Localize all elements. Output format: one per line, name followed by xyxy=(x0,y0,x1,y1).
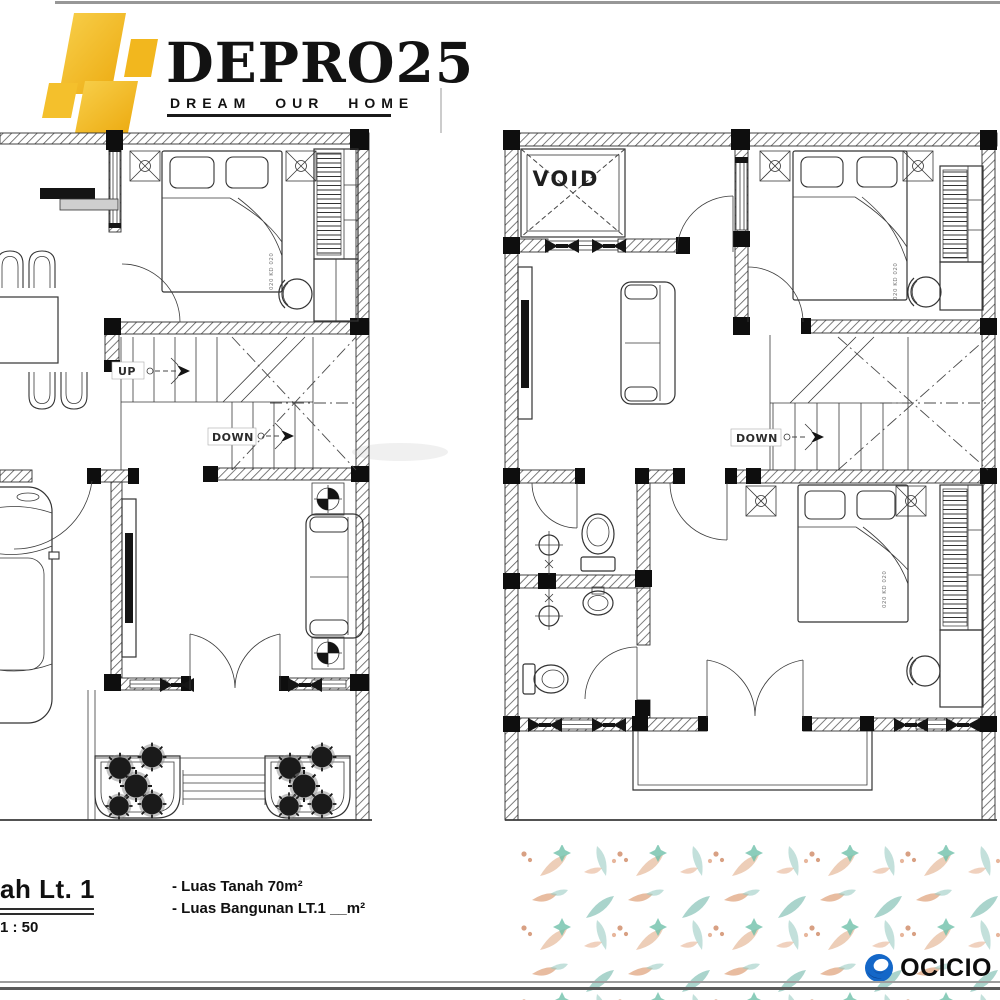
kitchen-counter xyxy=(40,188,118,210)
logo-tagline-rule xyxy=(167,114,391,117)
balcony xyxy=(633,731,872,790)
window xyxy=(735,157,748,230)
toilet xyxy=(523,664,568,694)
door-bedroom-top xyxy=(748,267,803,322)
chair xyxy=(907,656,940,686)
door-bedroom-bottom xyxy=(670,483,727,540)
double-bed xyxy=(793,151,907,300)
void-label: VOID xyxy=(533,167,600,191)
spotlight-icon xyxy=(312,637,344,669)
spotlight-icon xyxy=(312,483,344,515)
french-doors xyxy=(190,634,280,690)
double-bed xyxy=(162,151,282,292)
floor-plan-left: 020 KD 020 xyxy=(0,129,372,820)
double-bed xyxy=(798,485,908,622)
ceiling-fan-icon xyxy=(760,151,790,181)
ceiling-fan-icon xyxy=(130,151,160,181)
ocicio-wordmark: OCICIO xyxy=(900,954,992,983)
void-area: VOID xyxy=(521,149,625,237)
ceiling-fan-icon xyxy=(896,486,926,516)
top-border-line xyxy=(55,1,1000,4)
tv-console xyxy=(518,267,532,419)
ceiling-fan-icon xyxy=(286,151,316,181)
stair-down-label: DOWN xyxy=(731,424,824,450)
toilet xyxy=(581,514,615,571)
french-doors xyxy=(707,660,803,718)
door-garage xyxy=(14,481,92,549)
title-underline xyxy=(0,908,94,910)
stair-down-label: DOWN xyxy=(208,423,294,449)
plan-caption: ah Lt. 1 1 : 50 xyxy=(0,874,95,936)
title-underline-2 xyxy=(0,913,94,915)
ocicio-logo-icon xyxy=(863,952,895,984)
sofa xyxy=(621,282,675,404)
door-bathroom xyxy=(532,483,577,528)
floor-plan-drawing: 020 KD 020 xyxy=(0,0,1000,1000)
note-land-area: - Luas Tanah 70m² xyxy=(172,876,365,898)
footer-brandmark: OCICIO xyxy=(863,952,992,984)
window xyxy=(109,147,122,228)
chair xyxy=(279,279,312,309)
stairs xyxy=(770,335,988,470)
svg-text:DOWN: DOWN xyxy=(736,432,778,445)
bottom-border-line-2 xyxy=(0,987,1000,990)
area-notes: - Luas Tanah 70m² - Luas Bangunan LT.1 _… xyxy=(172,876,365,920)
wardrobe xyxy=(940,485,983,707)
sink xyxy=(583,587,613,615)
poster-sheet: 020 KD 020 xyxy=(0,0,1000,1000)
wardrobe xyxy=(940,166,983,310)
door-bathroom-lower xyxy=(585,647,637,700)
stair-up-label: UP xyxy=(112,358,190,384)
door-bedroom-left xyxy=(122,264,180,322)
plan-scale: 1 : 50 xyxy=(0,919,95,936)
logo-tiles-icon xyxy=(42,13,158,133)
chair xyxy=(908,277,941,307)
plan-title: ah Lt. 1 xyxy=(0,874,95,905)
wardrobe xyxy=(314,149,358,321)
svg-text:UP: UP xyxy=(118,365,136,378)
dining-table xyxy=(0,251,87,409)
car xyxy=(0,487,59,723)
sofa xyxy=(306,514,363,638)
scan-smudge xyxy=(352,443,448,461)
bed-size-label: 020 KD 020 xyxy=(893,263,899,300)
bed-size-label: 020 KD 020 xyxy=(882,571,888,608)
bed-size-label: 020 KD 020 xyxy=(269,253,275,290)
ceiling-fan-icon xyxy=(746,486,776,516)
bottom-border-line xyxy=(0,981,1000,983)
tv-console xyxy=(122,499,136,657)
stairs xyxy=(121,337,356,470)
floor-plan-right: VOID xyxy=(503,129,997,820)
planter-shrubs xyxy=(105,743,337,820)
svg-text:DOWN: DOWN xyxy=(212,431,254,444)
logo-brand-text: DEPRO25 xyxy=(166,30,474,95)
logo-tagline: DREAM OUR HOME xyxy=(170,95,414,111)
note-building-area: - Luas Bangunan LT.1 __m² xyxy=(172,898,365,920)
